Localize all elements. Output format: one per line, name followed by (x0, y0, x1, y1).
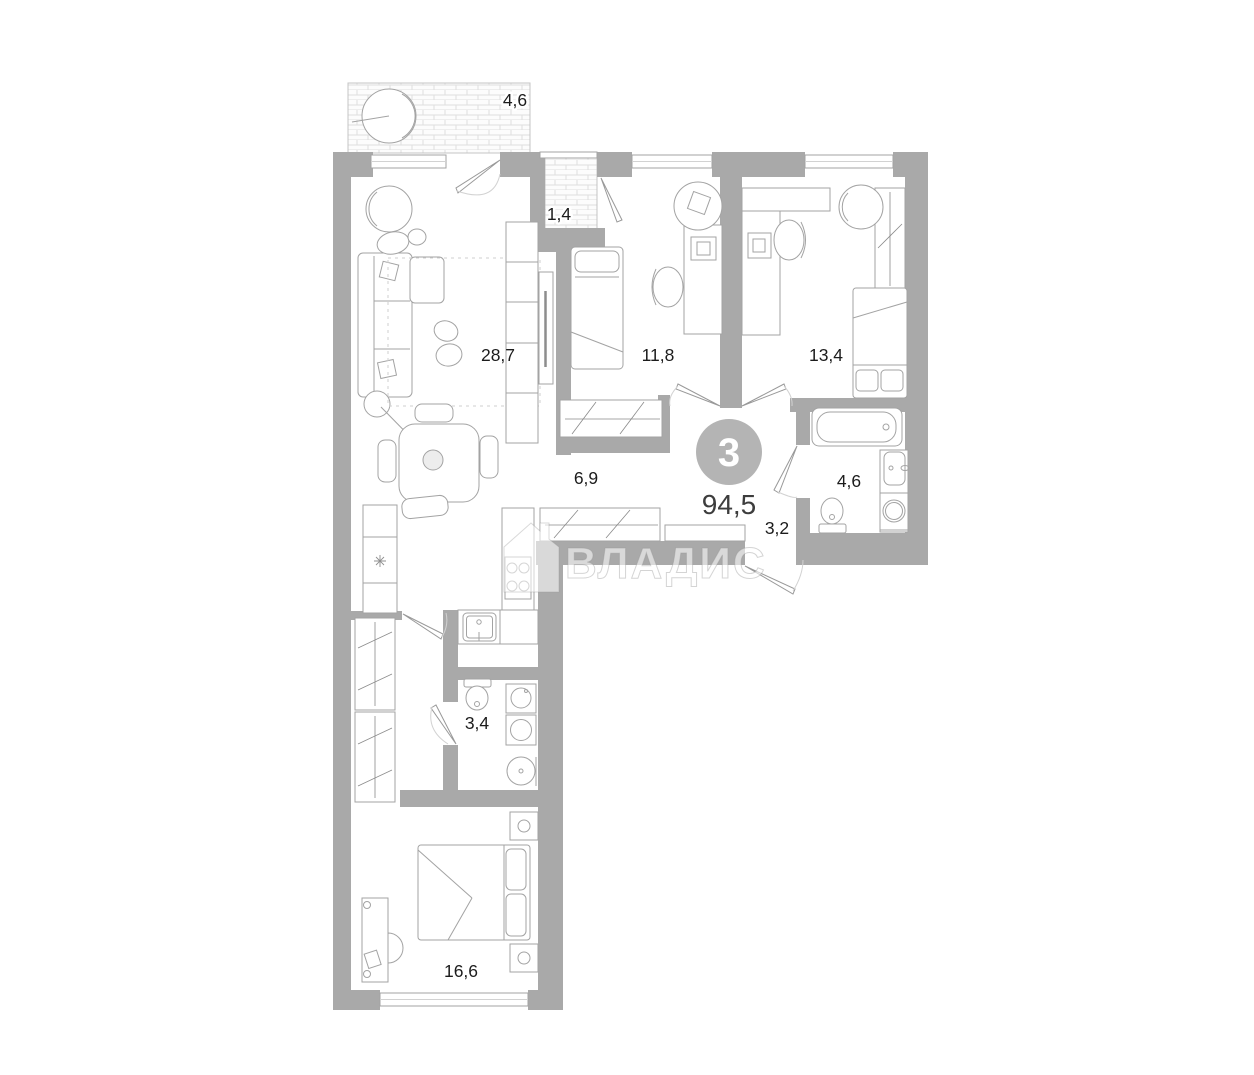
chair (388, 933, 403, 963)
room-label-bathroom-main: 4,6 (837, 471, 861, 491)
corridor-door (403, 614, 443, 639)
bathroom-2-door (431, 705, 456, 744)
living-room-furniture (358, 186, 553, 519)
desk-top (742, 188, 830, 211)
loggia-door (601, 178, 622, 222)
floor-plan: 4,6 1,4 28,7 11,8 13,4 6,9 4,6 3,2 3,4 1… (0, 0, 1254, 1075)
coffee-table (431, 318, 460, 344)
plan-type-badge: 3 94,5 (696, 419, 762, 520)
bedroom-master-furniture (362, 812, 538, 982)
dresser (362, 898, 388, 982)
desk-chair (653, 267, 683, 307)
floor-plan-page: 4,6 1,4 28,7 11,8 13,4 6,9 4,6 3,2 3,4 1… (0, 0, 1254, 1075)
room-label-entry-hall: 3,2 (765, 518, 789, 538)
room-label-bedroom-2: 13,4 (809, 345, 843, 365)
bedroom-1-window (632, 155, 712, 168)
lounge-chair (839, 185, 883, 229)
room-count: 3 (718, 431, 740, 475)
loggia-railing (540, 152, 597, 158)
room-label-loggia: 1,4 (547, 204, 572, 224)
toilet (821, 498, 843, 524)
living-room-window (371, 155, 446, 168)
desk-side (742, 211, 780, 335)
floor-lamp (364, 391, 390, 417)
bedroom-2-window (805, 155, 893, 168)
brand-watermark-text: ВЛАДИС (565, 539, 767, 588)
armchair (366, 186, 412, 232)
room-label-balcony: 4,6 (503, 90, 527, 110)
cabinet-column (506, 222, 538, 343)
desk-chair (774, 220, 804, 260)
room-label-bedroom-master: 16,6 (444, 961, 478, 981)
room-label-hallway: 6,9 (574, 468, 598, 488)
bedroom-2-door (742, 384, 786, 406)
dining-chair (415, 404, 453, 422)
bedroom-1-door (676, 384, 720, 406)
total-area: 94,5 (702, 489, 757, 520)
bathroom-main-door (774, 446, 797, 493)
nightstand (510, 944, 538, 972)
nightstand (510, 812, 538, 840)
room-label-bedroom-1: 11,8 (642, 345, 675, 365)
water-heater (507, 757, 535, 785)
sink (884, 452, 905, 485)
room-label-living: 28,7 (481, 345, 515, 365)
wardrobe-hallway (540, 508, 660, 541)
wardrobe-bedroom-1 (560, 400, 662, 437)
room-label-bathroom-2: 3,4 (465, 713, 490, 733)
washing-machine (880, 493, 908, 530)
bedroom-master-window (380, 993, 528, 1006)
